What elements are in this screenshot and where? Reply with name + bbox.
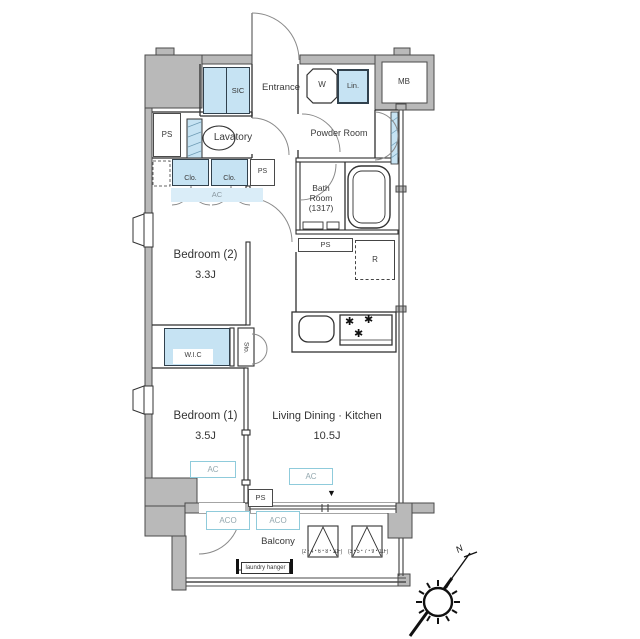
bedroom1-name: Bedroom (1) [174,410,238,423]
hatch2-floors-label: (3・5・7・9・11F) [348,548,389,557]
storage-label: Sto. [239,331,253,364]
ac-bedroom1: AC [190,461,236,478]
washer-label: W [309,74,335,96]
pipe-space-2: PS [250,159,275,186]
compass-north-label: N [454,543,465,555]
bedroom2-size: 3.3J [195,269,216,282]
room-label-bath-room: Bath Room (1317) [296,182,346,216]
room-label-powder-room: Powder Room [306,119,372,147]
balcony-bottom-rail [186,578,406,586]
laundry-hanger-label: laundry hanger [241,562,290,574]
sic-label: SIC [227,68,249,113]
bath-room-name: Bath Room [304,184,338,204]
sic-door-panel [204,68,227,113]
room-label-lavatory: Lavatory [202,131,264,145]
ac-outdoor-2: ACO [256,511,300,530]
pipe-space-4: PS [248,489,273,507]
room-label-ldk: Living Dining · Kitchen 10.5J [262,405,392,447]
room-label-bedroom1: Bedroom (1) 3.5J [148,405,263,447]
compass-icon: N [410,543,477,636]
stove-burner-icon: ✱ [354,327,363,340]
closet-2: Clo. [211,159,248,186]
ac-outdoor-1: ACO [206,511,250,530]
bath-room-size: (1317) [309,204,334,214]
ac-dashed-outline [153,161,170,186]
pipe-space-3: PS [298,238,353,252]
ldk-size: 10.5J [314,430,341,443]
sic-closet: SIC [203,67,250,114]
pipe-space-1: PS [153,113,181,157]
ac-ldk: AC [289,468,333,485]
room-label-bedroom2: Bedroom (2) 3.3J [148,244,263,286]
closet-1: Clo. [172,159,209,186]
stove-burner-icon: ✱ [345,315,354,328]
meter-box-label: MB [381,61,427,103]
stove-burner-icon: ✱ [364,313,373,326]
kitchen-counter [292,312,396,352]
ldk-name: Living Dining · Kitchen [272,410,381,423]
wic-label: W.I.C [173,349,213,364]
ac-bedroom2: AC [171,188,263,202]
room-label-entrance: Entrance [252,81,310,95]
refrigerator-space: R [355,240,395,280]
window-marker-icon: ▼ [327,488,336,498]
bedroom1-size: 3.5J [195,430,216,443]
bedroom2-name: Bedroom (2) [174,249,238,262]
room-label-balcony: Balcony [248,535,308,549]
hatch1-floors-label: (2・4・6・8・10F) [302,548,343,557]
linen-closet: Lin. [337,69,369,104]
floorplan-page: N SIC Lin. Clo. Clo. W.I.C Sto. Entrance… [0,0,640,639]
